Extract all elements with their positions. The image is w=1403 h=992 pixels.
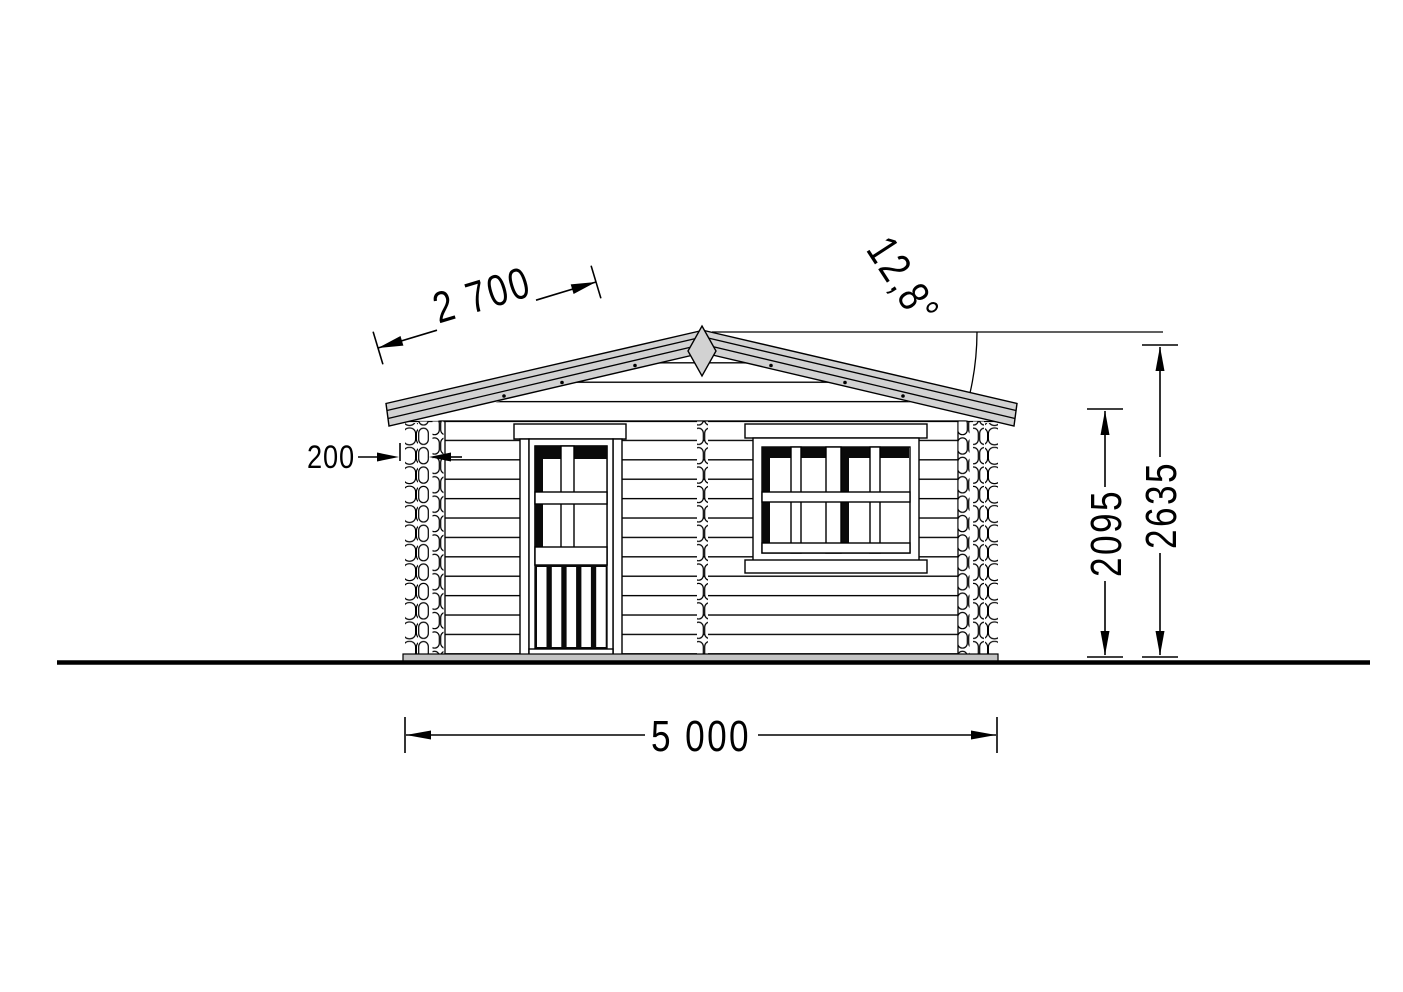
window-left-sash-shadow-top1	[770, 447, 791, 458]
door-plank	[552, 567, 562, 647]
window-mid-rail	[762, 492, 910, 502]
elevation-page: 12,8° 2 700 200 2095 2635	[0, 0, 1403, 992]
screw-dot	[560, 381, 564, 385]
right-corner-chain-outer	[973, 422, 984, 655]
dim-arrow-left	[406, 731, 431, 740]
total-width-label: 5 000	[651, 712, 751, 761]
door-glass-shadow-top-right	[574, 446, 607, 459]
dimension-wall-height: 2095	[1082, 409, 1131, 657]
dim-arrow-right	[377, 453, 399, 462]
double-window	[745, 424, 927, 573]
door-plank	[581, 567, 591, 647]
left-corner-chain-outer	[418, 422, 429, 655]
dim-arrow-right	[571, 282, 596, 294]
door-casing-right	[613, 439, 622, 655]
roof-angle-label: 12,8°	[857, 228, 949, 334]
middle-partition-chain	[697, 422, 708, 655]
dim-arrow-up	[1101, 411, 1110, 436]
right-corner-chain-inner	[959, 422, 970, 655]
screw-dot	[901, 394, 905, 398]
door-glass-shadow-top-left	[543, 446, 561, 459]
door-casing-left	[520, 439, 529, 655]
dimension-total-width: 5 000	[405, 712, 997, 761]
dimension-slope-length: 2 700	[373, 258, 601, 365]
window-lintel	[745, 424, 927, 438]
window-right-sash-shadow-top1	[849, 447, 870, 458]
wall-height-label: 2095	[1082, 489, 1131, 577]
door-plank	[567, 567, 577, 647]
dim-arrow-right	[971, 731, 996, 740]
entrance-door	[512, 424, 630, 663]
slope-length-label: 2 700	[427, 258, 537, 333]
dim-arrow-up	[1156, 347, 1165, 372]
screw-dot	[633, 364, 637, 368]
dim-arrow-left	[378, 336, 403, 348]
dim-arrow-down	[1101, 631, 1110, 656]
right-corner-log-ends	[985, 423, 998, 654]
screw-dot	[502, 394, 506, 398]
ridge-height-label: 2635	[1137, 461, 1186, 549]
door-mid-rail	[535, 547, 607, 565]
window-right-sash-shadow-top2	[880, 447, 909, 458]
left-corner-log-ends	[405, 423, 418, 654]
dim-arrow-down	[1156, 631, 1165, 656]
window-bottom-rail	[762, 543, 910, 553]
window-sill	[745, 560, 927, 573]
angle-arc	[970, 332, 977, 393]
screw-dot	[769, 364, 773, 368]
cabin-front-elevation-drawing: 12,8° 2 700 200 2095 2635	[0, 0, 1403, 992]
dimension-ridge-height: 2635	[1137, 345, 1186, 657]
door-glazing-rail	[535, 492, 607, 504]
log-thickness-label: 200	[307, 440, 355, 476]
door-plank	[537, 567, 547, 647]
door-lintel	[514, 424, 626, 439]
door-plank	[596, 567, 606, 647]
screw-dot	[843, 381, 847, 385]
